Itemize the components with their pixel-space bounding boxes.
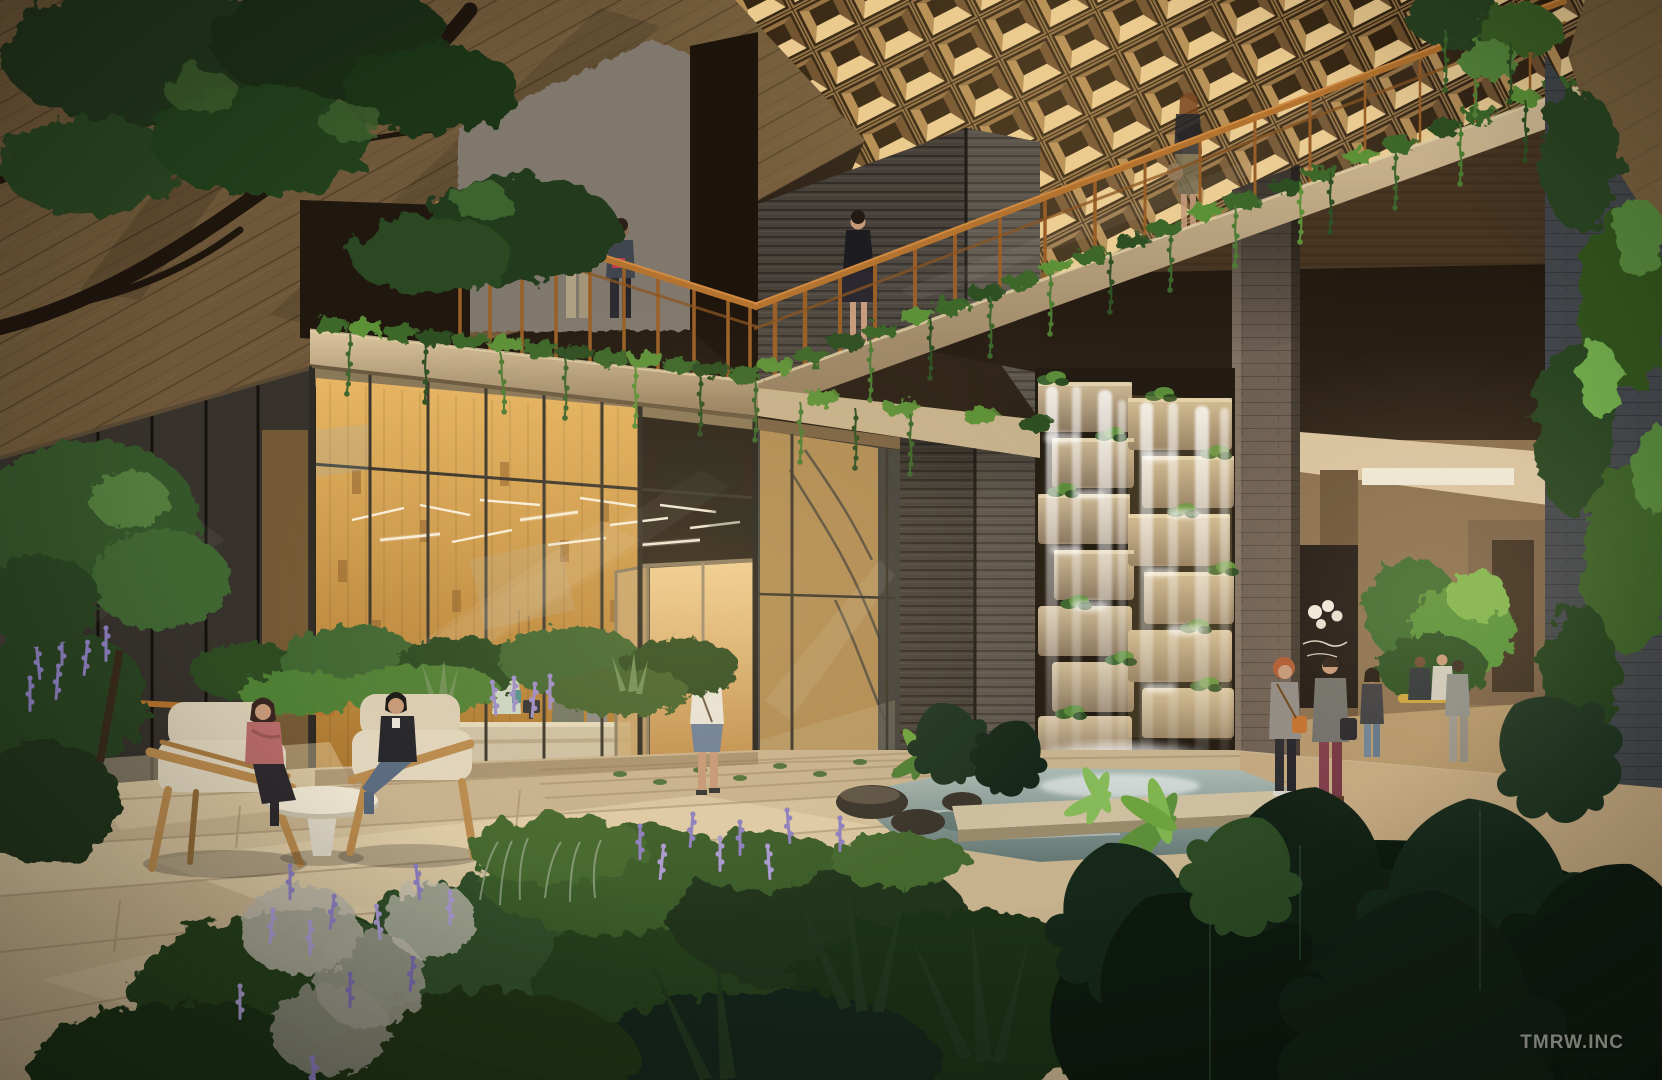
rendering-canvas [0, 0, 1662, 1080]
light-overlays [0, 0, 1662, 1080]
atrium-rendering: TMRW.INC [0, 0, 1662, 1080]
watermark: TMRW.INC [1520, 1032, 1624, 1054]
